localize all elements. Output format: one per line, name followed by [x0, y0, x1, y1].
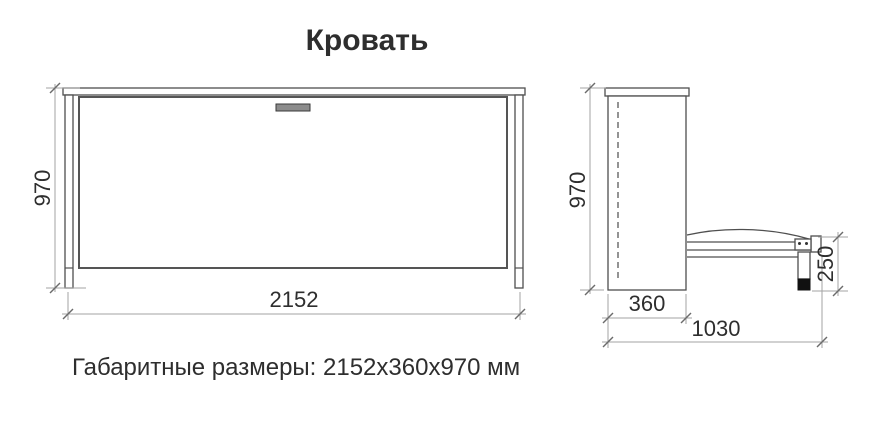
cabinet-top-cap	[605, 88, 689, 96]
side-view	[605, 88, 821, 290]
front-width-dimension: 2152	[62, 287, 526, 320]
front-height-label: 970	[30, 170, 55, 207]
cabinet-body	[608, 96, 686, 290]
front-width-label: 2152	[270, 287, 319, 312]
side-leg-height-label: 250	[813, 246, 838, 283]
bed-handle	[276, 104, 310, 111]
bed-front-panel	[79, 97, 507, 268]
bracket-screw-icon	[798, 242, 801, 245]
bed-top-cap	[63, 88, 525, 95]
bracket-screw-icon	[805, 242, 808, 245]
side-height-dimension: 970	[565, 83, 606, 295]
mattress-curve	[687, 229, 809, 239]
front-view	[63, 88, 525, 288]
bed-left-side	[65, 95, 73, 288]
side-depth-dimension: 360	[602, 291, 692, 348]
bed-support-leg	[798, 252, 810, 279]
side-height-label: 970	[565, 172, 590, 209]
leg-bracket	[795, 239, 811, 250]
side-depth-label: 360	[629, 291, 666, 316]
bed-leg-foot	[798, 279, 810, 290]
overall-dimensions-caption: Габаритные размеры: 2152х360х970 мм	[72, 354, 520, 382]
bed-right-side	[515, 95, 523, 288]
front-height-dimension: 970	[30, 83, 86, 293]
side-length-label: 1030	[692, 316, 741, 341]
